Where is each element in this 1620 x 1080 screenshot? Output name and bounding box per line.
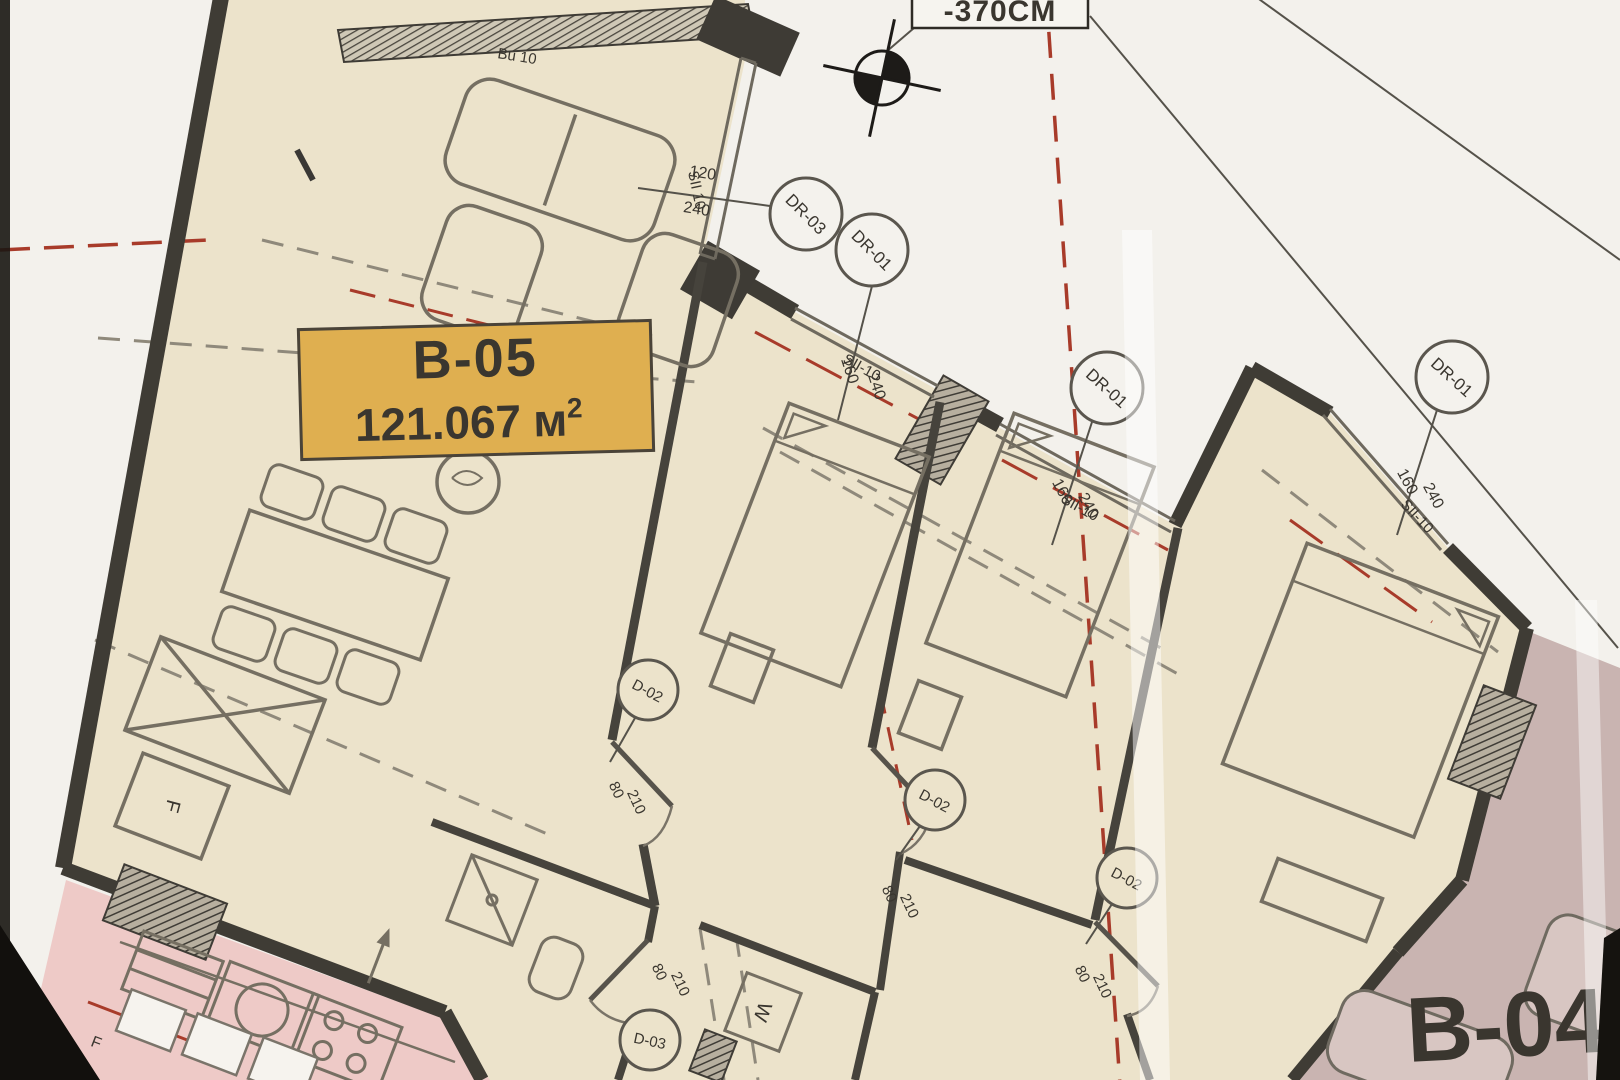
unit-area-value: 121.067 <box>354 395 522 451</box>
unit-area-label: B-05 121.067м2 <box>298 320 653 459</box>
unit-area-unit: м <box>532 394 567 447</box>
floor-plan-photo: -370CM B-05 121.067м2 DR-03 DR-01 DR-01 … <box>0 0 1620 1080</box>
unit-area: 121.067м2 <box>354 392 583 451</box>
unit-code: B-05 <box>412 327 539 390</box>
level-note: -370CM <box>912 0 1088 28</box>
level-note-text: -370CM <box>944 0 1057 28</box>
floor-plan-drawing: -370CM B-05 121.067м2 DR-03 DR-01 DR-01 … <box>0 0 1620 1080</box>
unit-area-sup: 2 <box>566 392 582 423</box>
neighbor-unit-code: B-04 <box>1404 970 1608 1080</box>
